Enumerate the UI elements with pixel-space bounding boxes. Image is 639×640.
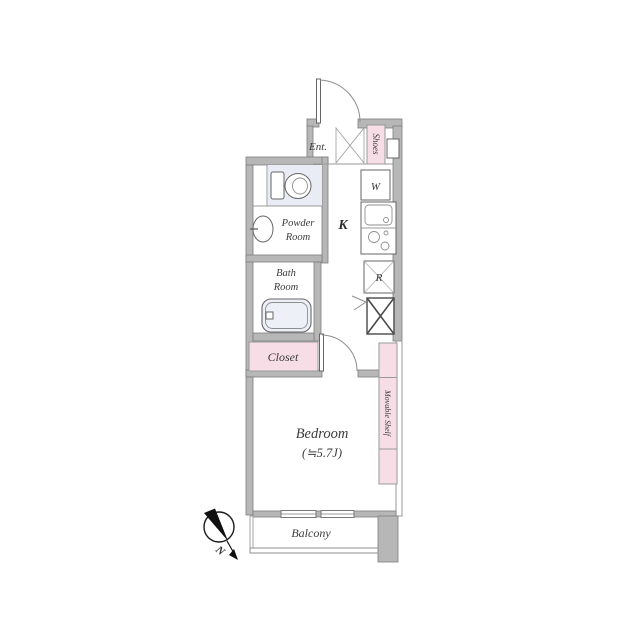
entrance-label: Ent.: [308, 141, 327, 153]
entrance-door-arc: [320, 80, 360, 122]
sanitary-area: Powder Room Bath Room: [250, 165, 322, 332]
compass-icon: N: [204, 509, 238, 561]
wall-balcony-right-block: [378, 516, 398, 562]
wall-bedroom-top-right: [358, 370, 379, 377]
wall-powder-bath-divider: [246, 255, 322, 262]
floor-plan-page: Ent. Shoes Powder Room Bath Room K W: [0, 0, 639, 640]
kitchen-label: K: [337, 218, 349, 233]
pipe-space-hatch-mark: [352, 296, 366, 310]
fridge-label: R: [375, 272, 383, 284]
powder-room-label-2: Room: [285, 232, 311, 243]
wall-bath-right: [314, 262, 321, 341]
balcony-label: Balcony: [291, 526, 331, 540]
closet-label: Closet: [268, 350, 299, 364]
wall-window-stub-left: [253, 511, 281, 517]
wall-bath-bottom: [253, 333, 314, 341]
shelf-label: Movable Shelf: [383, 389, 392, 438]
compass-north-label: N: [212, 543, 227, 559]
bedroom-label: Bedroom: [296, 426, 349, 442]
kitchen-area: K W R: [337, 170, 396, 334]
meter-box: [387, 139, 399, 158]
bathtub-faucet-icon: [266, 312, 273, 319]
bath-room-label-1: Bath: [276, 268, 296, 279]
washer-label: W: [371, 181, 381, 193]
bedroom-door-leaf: [320, 334, 324, 371]
shoe-cabinet-door-icon: [336, 128, 350, 163]
shoes-label: Shoes: [371, 134, 381, 155]
bedroom-door-arc: [322, 335, 357, 371]
powder-room-label-1: Powder: [281, 218, 316, 229]
bedroom-size-label: (≒5.7J): [302, 446, 342, 460]
bath-room-label-2: Room: [273, 282, 299, 293]
balcony-bottom-rail: [250, 548, 378, 553]
wall-powder-right: [322, 157, 328, 263]
shoe-cabinet-door-icon: [350, 128, 364, 163]
toilet-tank-icon: [271, 172, 284, 199]
compass-arrowhead-icon: [229, 549, 238, 560]
entrance-door-leaf: [317, 79, 321, 123]
wall-bedroom-left: [246, 377, 253, 515]
floor-plan-drawing: Ent. Shoes Powder Room Bath Room K W: [0, 0, 639, 640]
balcony-left-rail: [250, 516, 253, 549]
